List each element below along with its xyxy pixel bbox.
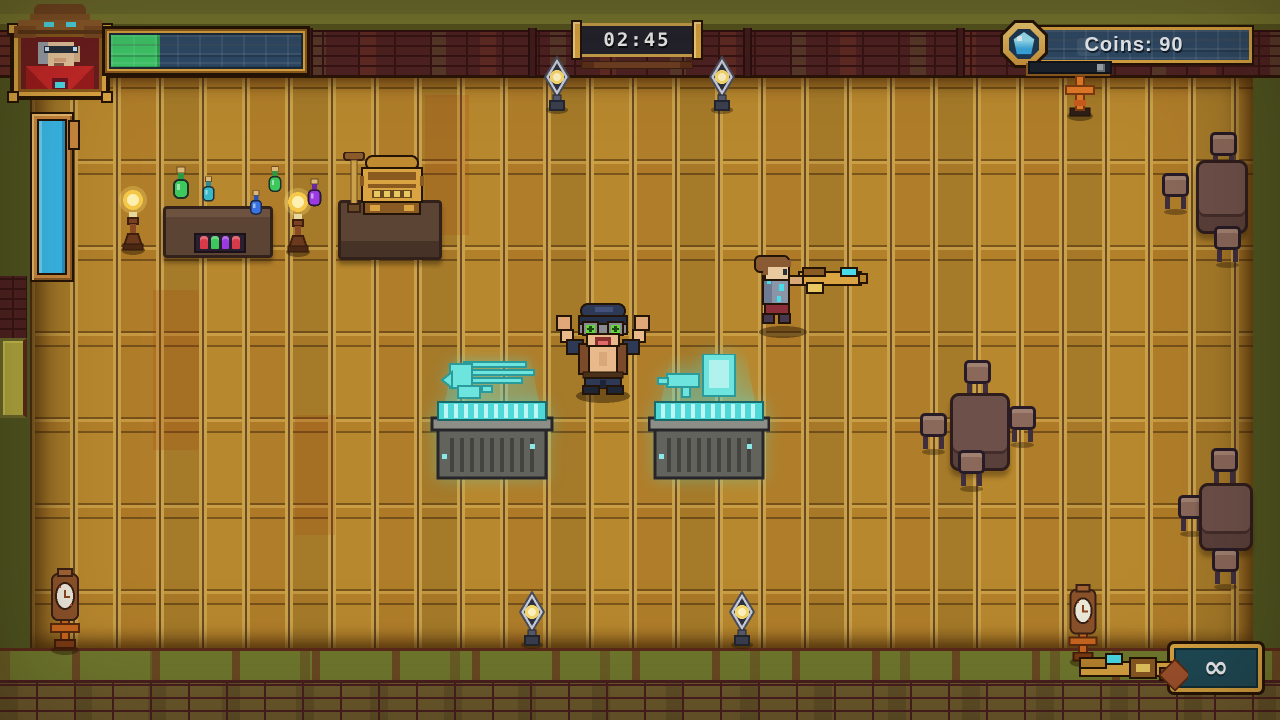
stool [1162, 173, 1189, 215]
player-portrait [4, 0, 116, 104]
shopkeeper-npc[interactable] [555, 302, 651, 404]
floor-stain [153, 290, 199, 450]
purple-potion [306, 177, 323, 210]
charge-meter [30, 112, 74, 282]
grandfather-clock [46, 568, 84, 656]
red-potion-icon [200, 236, 208, 249]
standing-lantern [518, 590, 546, 650]
stool [1009, 406, 1036, 448]
side-door[interactable] [0, 338, 27, 418]
coins-bar: Coins: 90 [1016, 27, 1252, 63]
purple-potion-icon [222, 236, 230, 249]
coins-panel: Coins: 90 [1000, 20, 1260, 76]
wall-pillar [743, 28, 752, 76]
wall-pillar [956, 28, 965, 76]
wall-candelabra [1058, 70, 1102, 122]
blue-potion [246, 190, 266, 217]
timer-frame-left [571, 20, 582, 60]
coins-label: Coins: 90 [1084, 34, 1183, 57]
charge-meter-fill [39, 121, 65, 273]
red-potion-icon [232, 236, 240, 249]
stool [920, 413, 947, 455]
timer-value: 02:45 [603, 29, 670, 51]
green-potion [170, 166, 192, 202]
stool [958, 450, 985, 492]
golden-rifle-icon [1076, 638, 1188, 696]
cash-register[interactable] [360, 154, 424, 228]
health-track [109, 33, 303, 69]
bottle-cabinet [194, 233, 246, 253]
display-case-blaster[interactable] [648, 354, 770, 488]
game-world[interactable]: 02:45 Coins: 90 ∞ [0, 0, 1280, 720]
timer-panel: 02:45 [571, 20, 703, 70]
floor-stain [295, 415, 335, 535]
timer-frame-right [692, 20, 703, 60]
standing-lantern [728, 590, 756, 650]
player-character [743, 250, 869, 340]
green-potion [267, 162, 283, 198]
stool [1212, 548, 1239, 590]
wall-pillar [528, 28, 537, 76]
standing-lantern [708, 55, 736, 115]
table [1199, 483, 1253, 551]
outside-right [1249, 0, 1280, 720]
green-potion-icon [211, 236, 219, 249]
left-wall-bricks [0, 276, 27, 338]
display-case-minigun[interactable] [430, 354, 554, 488]
teal-potion [200, 176, 217, 204]
coins-subbar [1028, 61, 1112, 74]
timer-shelf [581, 61, 693, 69]
health-bar [102, 26, 310, 76]
ammo-hud: ∞ [1076, 638, 1262, 700]
table [1196, 160, 1248, 234]
infinity-icon: ∞ [1204, 653, 1229, 683]
stool [1214, 226, 1241, 268]
standing-lantern [543, 55, 571, 115]
candle-lamp [118, 178, 148, 256]
tool-icon [1097, 64, 1105, 72]
